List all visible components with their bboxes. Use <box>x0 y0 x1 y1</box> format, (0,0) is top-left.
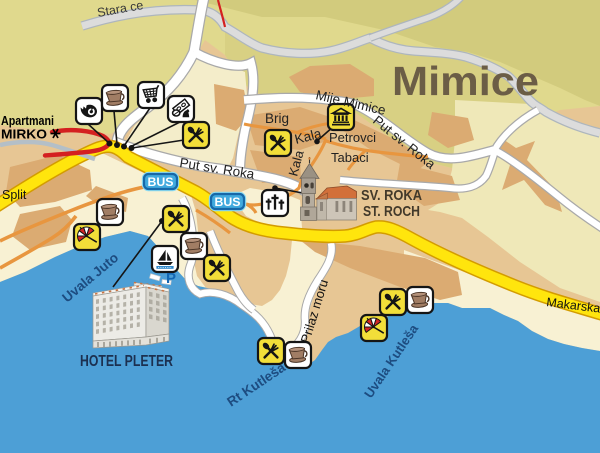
svg-text:MIRKO: MIRKO <box>1 128 47 142</box>
svg-text:Brig: Brig <box>265 111 289 126</box>
svg-text:ST. ROCH: ST. ROCH <box>363 203 420 220</box>
svg-text:Split: Split <box>2 188 27 202</box>
svg-text:P: P <box>166 270 176 287</box>
svg-text:SV. ROKA: SV. ROKA <box>361 187 422 204</box>
svg-text:HOTEL PLETER: HOTEL PLETER <box>80 353 173 370</box>
svg-text:Petrovci: Petrovci <box>329 130 376 145</box>
svg-text:Mimice: Mimice <box>392 58 539 104</box>
svg-text:Apartmani: Apartmani <box>1 114 54 128</box>
svg-text:Tabaci: Tabaci <box>331 150 369 165</box>
